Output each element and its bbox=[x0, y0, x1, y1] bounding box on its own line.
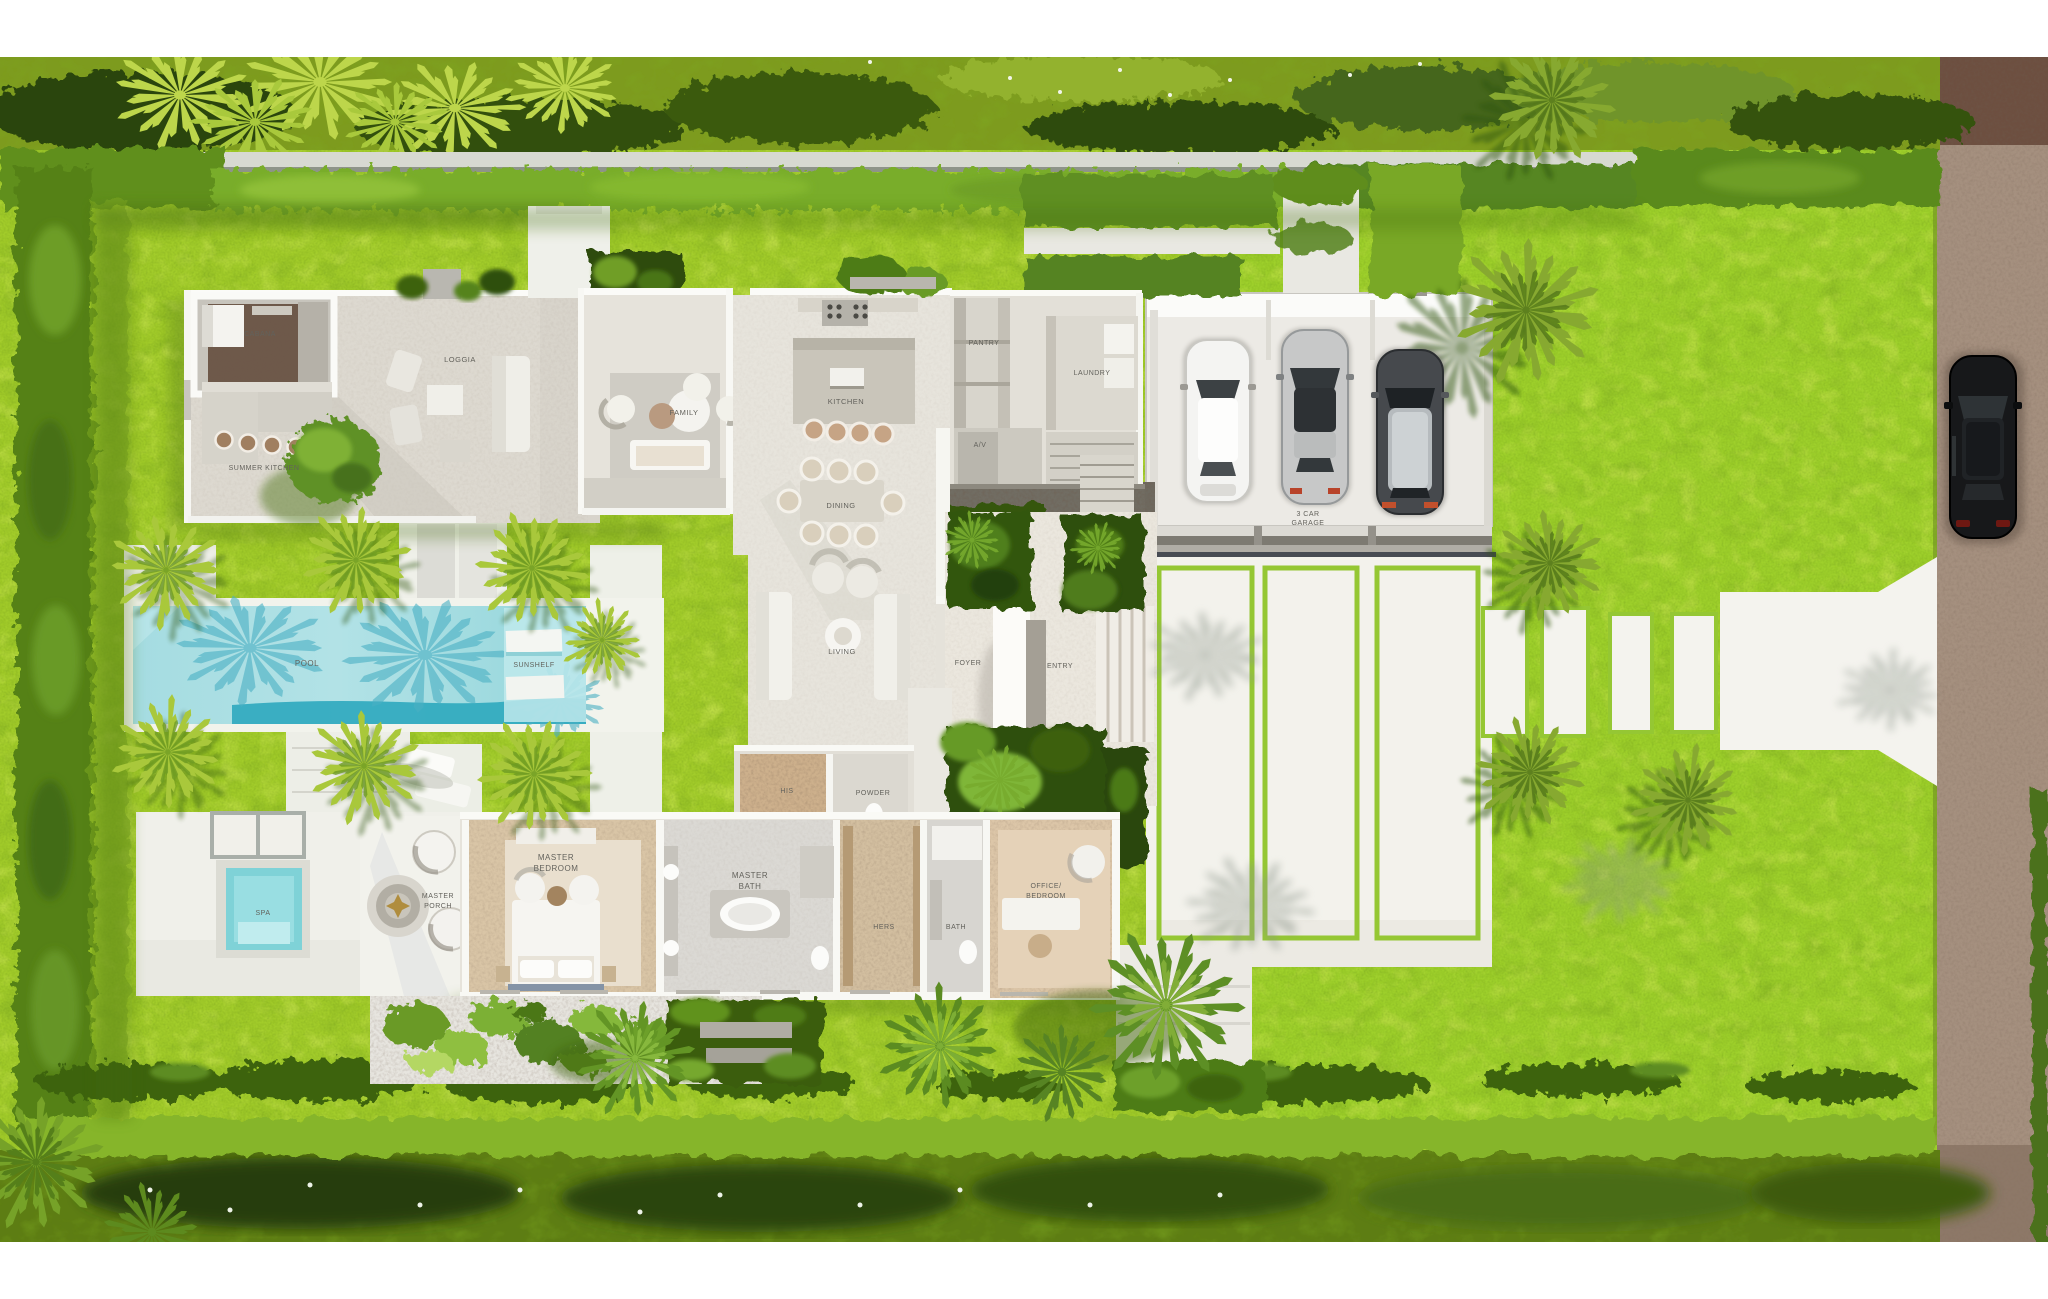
svg-text:SUMMER KITCHEN: SUMMER KITCHEN bbox=[229, 465, 300, 472]
svg-text:FOYER: FOYER bbox=[955, 660, 982, 667]
svg-text:A/V: A/V bbox=[974, 442, 987, 449]
svg-text:OFFICE/: OFFICE/ bbox=[1030, 883, 1061, 890]
svg-text:SUNSHELF: SUNSHELF bbox=[513, 662, 554, 669]
svg-text:HERS: HERS bbox=[873, 924, 894, 931]
svg-text:MASTER: MASTER bbox=[422, 893, 454, 900]
svg-text:FAMILY: FAMILY bbox=[669, 408, 698, 417]
svg-text:PORCH: PORCH bbox=[424, 903, 452, 910]
svg-text:DINING: DINING bbox=[826, 501, 855, 510]
svg-text:PANTRY: PANTRY bbox=[969, 340, 1000, 347]
svg-text:ENTRY: ENTRY bbox=[1047, 663, 1073, 670]
svg-text:GARAGE: GARAGE bbox=[1292, 520, 1325, 527]
svg-text:BEDROOM: BEDROOM bbox=[1026, 893, 1066, 900]
svg-text:KITCHEN: KITCHEN bbox=[828, 397, 864, 406]
svg-text:MASTER: MASTER bbox=[538, 853, 574, 862]
svg-text:HIS: HIS bbox=[780, 788, 793, 795]
svg-text:BATH: BATH bbox=[739, 882, 762, 891]
svg-text:BEDROOM: BEDROOM bbox=[534, 864, 579, 873]
svg-text:POWDER: POWDER bbox=[856, 790, 891, 797]
svg-text:CABANA: CABANA bbox=[244, 331, 276, 338]
svg-text:3 CAR: 3 CAR bbox=[1296, 511, 1319, 518]
svg-text:LOGGIA: LOGGIA bbox=[444, 355, 476, 364]
svg-text:LIVING: LIVING bbox=[828, 647, 856, 656]
svg-text:LAUNDRY: LAUNDRY bbox=[1074, 370, 1111, 377]
svg-text:SPA: SPA bbox=[256, 910, 271, 917]
svg-text:BATH: BATH bbox=[946, 924, 966, 931]
svg-text:POOL: POOL bbox=[295, 659, 319, 668]
svg-text:MASTER: MASTER bbox=[732, 871, 768, 880]
